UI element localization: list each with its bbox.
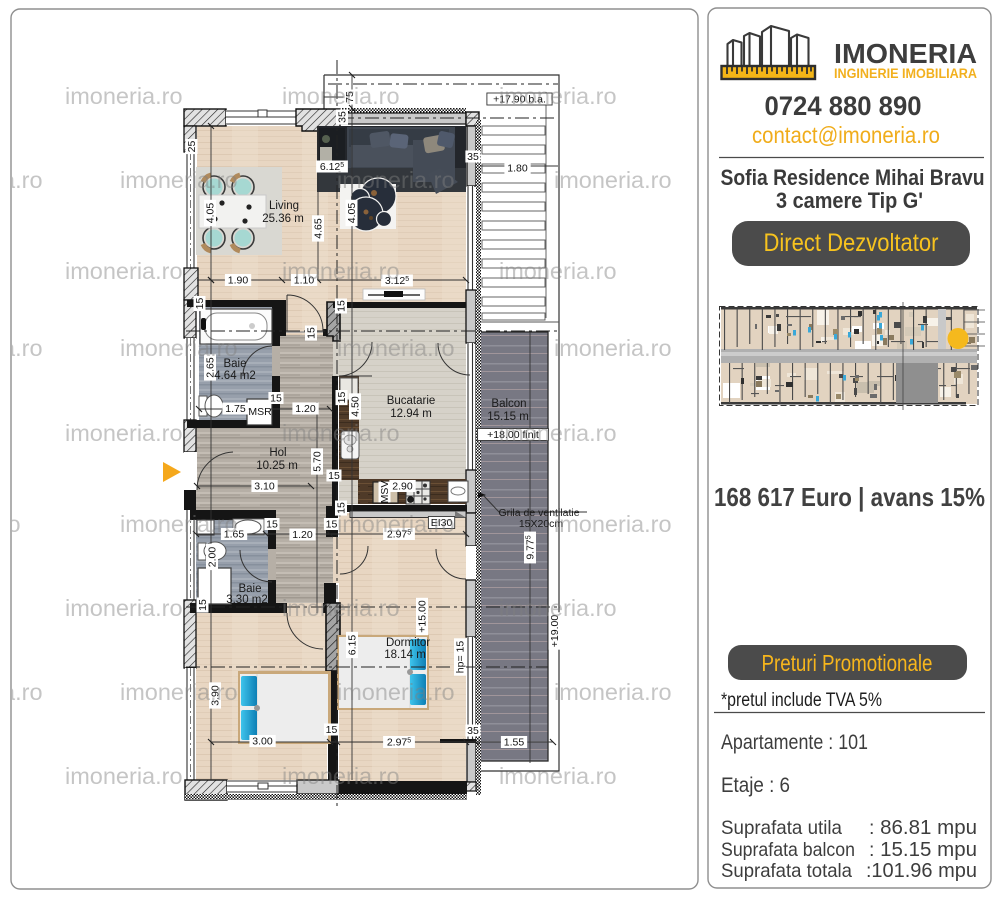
svg-text:Direct Dezvoltator: Direct Dezvoltator <box>764 229 939 257</box>
svg-text:imoneria.ro: imoneria.ro <box>0 167 43 193</box>
svg-text:Sofia Residence Mihai Bravu: Sofia Residence Mihai Bravu <box>721 165 985 190</box>
svg-text:15: 15 <box>270 393 282 405</box>
svg-text:5.70: 5.70 <box>312 451 324 472</box>
svg-text:86.81 mpu: 86.81 mpu <box>880 816 977 839</box>
svg-text:35: 35 <box>467 725 479 737</box>
svg-text:imoneria.ro: imoneria.ro <box>120 167 238 193</box>
svg-text:4.05: 4.05 <box>346 203 358 224</box>
svg-text:15: 15 <box>326 519 338 531</box>
svg-text:3.00: 3.00 <box>252 736 273 748</box>
svg-text:15: 15 <box>336 392 348 404</box>
svg-text:imoneria.ro: imoneria.ro <box>554 335 672 361</box>
svg-text:Preturi Promotionale: Preturi Promotionale <box>762 650 933 676</box>
svg-text:imoneria.ro: imoneria.ro <box>554 167 672 193</box>
svg-text:imoneria.ro: imoneria.ro <box>282 763 400 789</box>
svg-text:contact@imoneria.ro: contact@imoneria.ro <box>752 122 940 148</box>
svg-text:15: 15 <box>194 298 206 310</box>
svg-text:1.75: 1.75 <box>225 403 246 415</box>
svg-text:25.36 m: 25.36 m <box>262 213 304 225</box>
svg-text:15: 15 <box>326 724 338 736</box>
svg-text:Suprafata totala: Suprafata totala <box>721 860 852 882</box>
svg-text:6.15: 6.15 <box>347 635 359 656</box>
svg-text:10.25 m: 10.25 m <box>256 460 298 472</box>
svg-text:Apartamente : 101: Apartamente : 101 <box>721 731 868 754</box>
svg-text:imoneria.ro: imoneria.ro <box>120 335 238 361</box>
svg-text:25: 25 <box>186 141 198 153</box>
svg-text:4.50: 4.50 <box>350 396 362 417</box>
svg-text:imoneria.ro: imoneria.ro <box>0 679 43 705</box>
svg-text:hp= 15: hp= 15 <box>455 641 467 674</box>
svg-text:35: 35 <box>467 151 479 163</box>
svg-text:IMONERIA: IMONERIA <box>834 38 977 69</box>
svg-text::: : <box>869 839 874 861</box>
svg-text:168 617 Euro | avans 15%: 168 617 Euro | avans 15% <box>714 482 985 512</box>
svg-text:4.64 m2: 4.64 m2 <box>214 370 256 382</box>
svg-text:1.80: 1.80 <box>507 163 528 175</box>
svg-text::: : <box>869 817 874 839</box>
svg-text:imoneria.ro: imoneria.ro <box>65 258 183 284</box>
svg-text:4.65: 4.65 <box>313 218 325 239</box>
svg-text:+15.00: +15.00 <box>417 600 429 633</box>
svg-text:15: 15 <box>306 327 318 339</box>
svg-text:35: 35 <box>337 111 349 123</box>
svg-text:15.15 mpu: 15.15 mpu <box>880 838 977 861</box>
svg-text:imoneria.ro: imoneria.ro <box>337 511 455 537</box>
svg-text:3.30 m2: 3.30 m2 <box>226 594 268 606</box>
svg-text:imoneria.ro: imoneria.ro <box>554 679 672 705</box>
svg-text:Balcon: Balcon <box>491 398 526 410</box>
svg-text:Living: Living <box>269 200 299 212</box>
svg-text:Suprafata balcon: Suprafata balcon <box>721 839 855 861</box>
svg-text:2.00: 2.00 <box>207 547 219 568</box>
svg-text:*pretul include TVA 5%: *pretul include TVA 5% <box>721 690 882 711</box>
svg-text:imoneria.ro: imoneria.ro <box>120 511 238 537</box>
svg-text:imoneria.ro: imoneria.ro <box>282 83 400 109</box>
svg-text:imoneria.ro: imoneria.ro <box>499 83 617 109</box>
svg-text:imoneria.ro: imoneria.ro <box>337 167 455 193</box>
svg-text:15: 15 <box>328 470 340 482</box>
svg-text:12.94 m: 12.94 m <box>390 408 432 420</box>
svg-text:15: 15 <box>197 599 209 611</box>
svg-text:1.55: 1.55 <box>504 737 525 749</box>
svg-text:imoneria.ro: imoneria.ro <box>499 763 617 789</box>
svg-text:imoneria.ro: imoneria.ro <box>554 511 672 537</box>
svg-text:imoneria.ro: imoneria.ro <box>337 679 455 705</box>
svg-text:imoneria.ro: imoneria.ro <box>499 420 617 446</box>
svg-text:15: 15 <box>266 519 278 531</box>
svg-text:3.10: 3.10 <box>254 481 275 493</box>
svg-text:3 camere Tip G': 3 camere Tip G' <box>776 188 923 213</box>
svg-text:INGINERIE IMOBILIARA: INGINERIE IMOBILIARA <box>834 66 977 81</box>
svg-text:Etaje : 6: Etaje : 6 <box>721 774 790 797</box>
svg-text:imoneria.ro: imoneria.ro <box>65 595 183 621</box>
svg-text:imoneria.ro: imoneria.ro <box>499 595 617 621</box>
svg-text:2.90: 2.90 <box>392 481 413 493</box>
svg-text:Bucatarie: Bucatarie <box>387 395 436 407</box>
svg-text:0724 880 890: 0724 880 890 <box>765 91 922 121</box>
svg-text:imoneria.ro: imoneria.ro <box>282 258 400 284</box>
svg-text:15: 15 <box>336 300 348 312</box>
svg-text:imoneria.ro: imoneria.ro <box>65 83 183 109</box>
svg-text:MSR: MSR <box>248 406 272 418</box>
svg-text:imoneria.ro: imoneria.ro <box>282 420 400 446</box>
svg-text:imoneria.ro: imoneria.ro <box>0 511 21 537</box>
svg-text:imoneria.ro: imoneria.ro <box>0 335 43 361</box>
svg-text:101.96 mpu: 101.96 mpu <box>871 860 977 882</box>
svg-text:imoneria.ro: imoneria.ro <box>120 679 238 705</box>
svg-text:4.05: 4.05 <box>205 203 217 224</box>
svg-text:Dormitor: Dormitor <box>386 637 430 649</box>
svg-text:imoneria.ro: imoneria.ro <box>499 258 617 284</box>
svg-text:imoneria.ro: imoneria.ro <box>337 335 455 361</box>
svg-text:18.14 m: 18.14 m <box>384 649 426 661</box>
svg-text:1.20: 1.20 <box>292 529 313 541</box>
svg-text:Suprafata utila: Suprafata utila <box>721 817 842 839</box>
svg-text:imoneria.ro: imoneria.ro <box>65 763 183 789</box>
svg-text:1.90: 1.90 <box>228 275 249 287</box>
svg-text:MSV: MSV <box>379 481 391 504</box>
svg-text:1.20: 1.20 <box>295 403 316 415</box>
svg-text:imoneria.ro: imoneria.ro <box>65 420 183 446</box>
svg-text:imoneria.ro: imoneria.ro <box>282 595 400 621</box>
svg-text:Hol: Hol <box>269 447 286 459</box>
